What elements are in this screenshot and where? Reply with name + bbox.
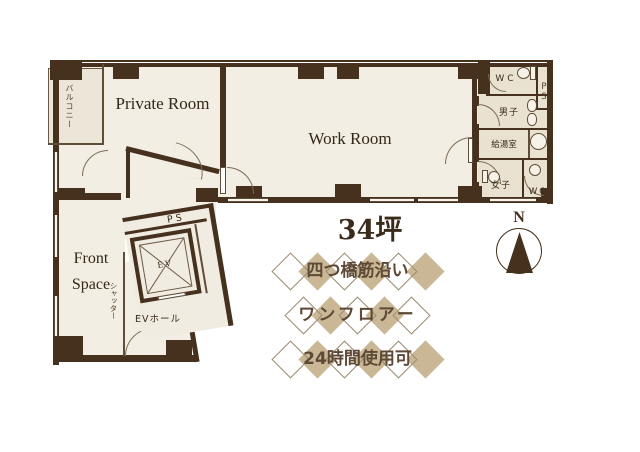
toilet-icon: [529, 164, 541, 176]
womens-label: 女子: [486, 178, 516, 191]
wall-facility-left-2: [476, 124, 479, 162]
banner-row-1: ワンフロアー: [270, 294, 445, 336]
window-segment: [418, 198, 458, 202]
column-block: [298, 63, 324, 79]
banner-text: ワンフロアー: [270, 294, 445, 336]
area-size-label: 34坪: [300, 208, 440, 247]
urinal-icon: [527, 113, 537, 126]
column-block: [458, 63, 480, 79]
column-block: [335, 184, 361, 199]
wall-balcony-bottom: [48, 143, 104, 145]
toilet-tank-icon: [530, 66, 536, 80]
column-block: [113, 63, 139, 79]
ev-hall-label: EVホール: [126, 311, 190, 325]
elevator-cab-outline: EV: [139, 237, 193, 294]
column-block: [50, 60, 82, 80]
floorplan-canvas: PS EV バルコニー Private Room Work Room Front…: [0, 0, 640, 452]
banner-row-0: 四つ橋筋沿い: [270, 250, 445, 292]
elevator-door: [158, 292, 186, 301]
column-block: [196, 188, 218, 202]
banner-row-2: 24時間使用可: [270, 338, 445, 380]
column-block: [337, 63, 359, 79]
private-room-label: Private Room: [90, 94, 235, 114]
wc-bottom-label: WC: [524, 187, 552, 197]
kitchenette-label: 給湯室: [482, 138, 526, 150]
mens-label: 男子: [494, 105, 524, 118]
window-segment: [370, 198, 414, 202]
north-label: N: [504, 209, 534, 227]
column-block: [166, 340, 192, 357]
wall-mens-bottom: [478, 128, 552, 130]
wall-private-work-divider: [220, 64, 226, 168]
work-room-label: Work Room: [270, 129, 430, 149]
front-space-label-line1: Front: [57, 250, 125, 268]
column-block: [55, 188, 85, 200]
balcony-label: バルコニー: [64, 84, 75, 144]
banner-text: 24時間使用可: [270, 338, 445, 380]
column-block: [53, 336, 83, 358]
elevator-shaft: EV: [130, 228, 202, 303]
wall-kitchenette-bottom: [478, 158, 552, 160]
wall-sink-alcove: [528, 130, 530, 158]
urinal-icon: [527, 99, 537, 112]
wc-top-label: WC: [492, 74, 520, 84]
window-segment: [54, 152, 58, 192]
feature-banners: 四つ橋筋沿い ワンフロアー 24時間使用可: [270, 250, 445, 382]
window-segment: [490, 198, 536, 202]
sink-icon: [530, 133, 547, 150]
ps-duct-label: PS: [539, 82, 549, 112]
window-segment: [228, 198, 268, 202]
shutter-label: シャッター: [108, 282, 119, 338]
door-leaf: [220, 167, 226, 194]
window-segment: [54, 296, 58, 336]
wall-smallroom-right: [126, 148, 130, 198]
column-block: [458, 186, 482, 200]
banner-text: 四つ橋筋沿い: [270, 250, 445, 292]
